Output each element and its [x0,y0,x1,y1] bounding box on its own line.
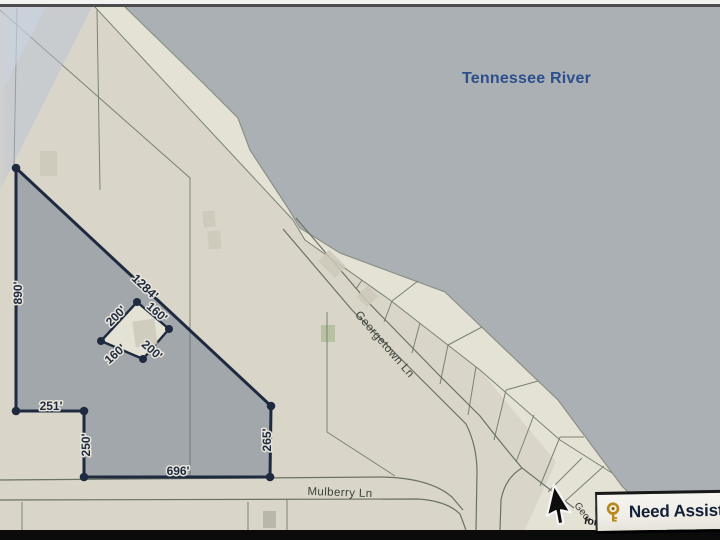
side-length-right: 265' [260,428,274,451]
parcel-vertex [266,473,275,482]
building-footprint [263,511,276,528]
screen-bottom-bezel [0,530,720,540]
inner-lot-vertex [97,337,105,345]
parcel-vertex [12,407,21,416]
inner-lot-vertex [165,325,173,333]
key-icon [606,496,620,529]
side-length-notch-top: 251' [40,399,63,413]
building-footprint [202,211,215,228]
screen-top-border [0,4,720,7]
side-length-bottom: 696' [167,464,190,478]
inner-lot-vertex [139,355,147,363]
need-assistance-bar[interactable]: Need Assist [595,490,720,531]
parcel-vertex [80,407,89,416]
plat-map[interactable]: 890' 1284' 251' 250' 696' 265' 200' 160'… [0,0,720,540]
inner-lot-vertex [133,298,141,306]
parcel-vertex [12,164,21,173]
building-footprint [40,151,57,176]
river-label: Tennessee River [462,70,591,87]
assist-label: Need Assist [629,501,720,523]
gis-plat-viewer: 890' 1284' 251' 250' 696' 265' 200' 160'… [0,0,720,540]
parcel-vertex [80,473,89,482]
green-lot-marker [321,325,335,342]
side-length-notch-left: 250' [79,433,93,456]
parcel-vertex [267,402,276,411]
building-footprint [207,230,222,249]
mulberry-ln-label: Mulberry Ln [307,486,373,500]
side-length-left: 890' [11,281,25,304]
